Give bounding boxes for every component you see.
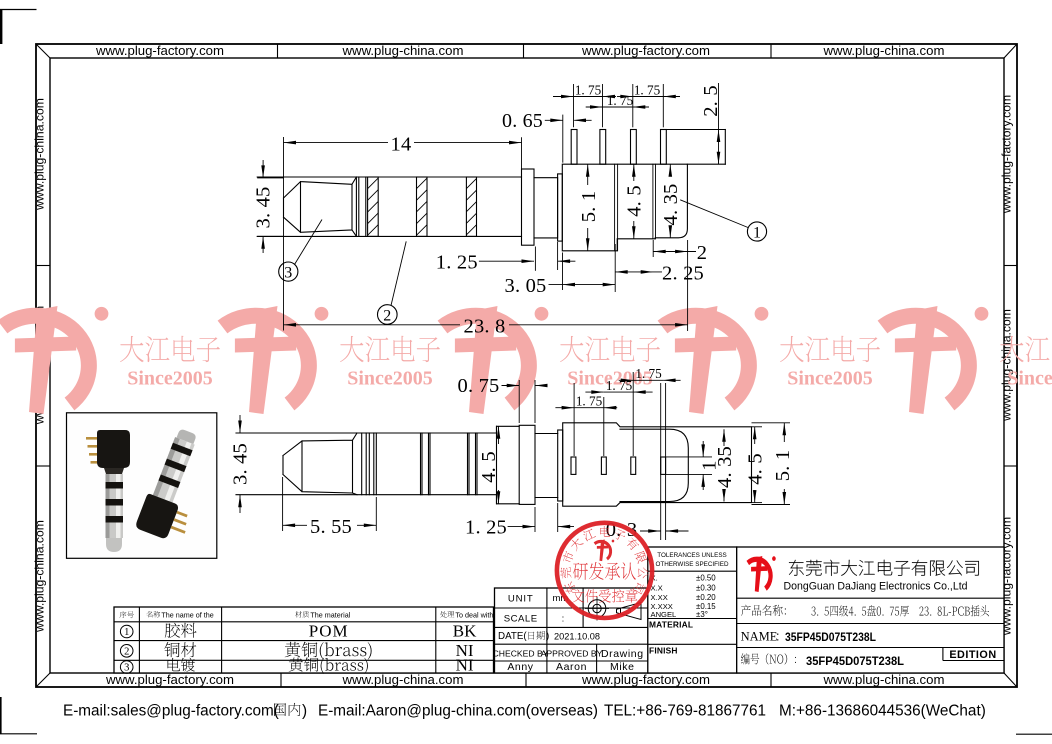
svg-text:3: 3 — [124, 663, 129, 674]
svg-text:www.plug-factory.com: www.plug-factory.com — [581, 43, 710, 58]
svg-text:14: 14 — [391, 134, 412, 156]
svg-text:www.plug-china.com: www.plug-china.com — [33, 520, 47, 633]
svg-text:23. 8: 23. 8 — [464, 316, 506, 338]
svg-text:X.XX: X.XX — [651, 593, 668, 602]
svg-text:1. 75: 1. 75 — [634, 83, 661, 98]
svg-text:4. 5: 4. 5 — [623, 185, 645, 217]
svg-text:www.plug-china.com: www.plug-china.com — [342, 672, 464, 687]
svg-text:X.X: X.X — [651, 584, 663, 593]
svg-text:±0.50: ±0.50 — [696, 574, 716, 583]
svg-text:1. 75: 1. 75 — [635, 366, 662, 381]
svg-text:The material: The material — [310, 611, 350, 620]
svg-text:www.plug-factory.com: www.plug-factory.com — [1000, 95, 1014, 214]
svg-text:2: 2 — [124, 646, 129, 657]
svg-text:1: 1 — [753, 225, 761, 242]
svg-text:ANGEL: ANGEL — [651, 610, 677, 619]
svg-text:±0.30: ±0.30 — [696, 584, 716, 593]
svg-text:3: 3 — [284, 265, 292, 282]
svg-text:1. 75: 1. 75 — [607, 93, 634, 108]
svg-text:www.plug-china.com: www.plug-china.com — [823, 43, 945, 58]
svg-text:0. 65: 0. 65 — [502, 110, 543, 132]
svg-text:UNIT: UNIT — [508, 594, 534, 605]
svg-text:NAME: NAME — [741, 630, 778, 644]
svg-text:2. 5: 2. 5 — [700, 85, 722, 117]
svg-text:3. 45: 3. 45 — [229, 443, 251, 485]
svg-text:2. 25: 2. 25 — [662, 263, 704, 285]
svg-text:TOLERANCES UNLESS: TOLERANCES UNLESS — [657, 552, 727, 559]
svg-text:3. 05: 3. 05 — [505, 275, 547, 297]
svg-text:BK: BK — [453, 622, 477, 641]
svg-text:2: 2 — [697, 242, 707, 264]
svg-text:1. 25: 1. 25 — [465, 517, 507, 539]
svg-text:APPROVED BY: APPROVED BY — [541, 648, 603, 658]
svg-text:www.plug-china.com: www.plug-china.com — [823, 672, 945, 687]
svg-text:1. 75: 1. 75 — [576, 394, 603, 409]
svg-text:Since2005: Since2005 — [127, 368, 213, 390]
svg-text:DongGuan DaJiang Electronics C: DongGuan DaJiang Electronics Co.,Ltd — [784, 581, 968, 593]
svg-text:2021.10.08: 2021.10.08 — [554, 631, 600, 641]
svg-text:4. 35: 4. 35 — [714, 446, 736, 488]
svg-text:5. 1: 5. 1 — [772, 450, 794, 482]
svg-text:Since2005: Since2005 — [347, 368, 433, 390]
svg-text:www.plug-factory.com: www.plug-factory.com — [95, 43, 224, 58]
svg-text:www.plug-china.com: www.plug-china.com — [33, 98, 47, 211]
svg-text:): ) — [546, 631, 549, 642]
svg-text:Since2005: Since2005 — [1007, 368, 1052, 390]
svg-text:4. 5: 4. 5 — [478, 451, 500, 483]
svg-text:5. 1: 5. 1 — [578, 191, 600, 223]
svg-text:M:+86-13686044536(WeChat): M:+86-13686044536(WeChat) — [779, 703, 986, 720]
svg-text:NI: NI — [456, 656, 474, 675]
svg-text:Anny: Anny — [507, 661, 533, 673]
svg-text:Drawing: Drawing — [601, 648, 644, 660]
svg-text:1. 25: 1. 25 — [436, 252, 478, 274]
svg-text:MATERIAL: MATERIAL — [649, 619, 693, 629]
svg-text:3. 45: 3. 45 — [252, 187, 274, 229]
svg-text:DATE(: DATE( — [498, 631, 527, 642]
svg-text:4. 35: 4. 35 — [660, 184, 682, 226]
svg-text:TEL:+86-769-81867761: TEL:+86-769-81867761 — [604, 703, 766, 720]
svg-text:2: 2 — [383, 308, 391, 325]
svg-text:1. 75: 1. 75 — [575, 83, 602, 98]
svg-text:OTHERWISE SPECIFIED: OTHERWISE SPECIFIED — [655, 561, 728, 568]
svg-text:Aaron: Aaron — [556, 661, 587, 673]
svg-text:www.plug-factory.com: www.plug-factory.com — [105, 672, 234, 687]
svg-text:0. 75: 0. 75 — [458, 375, 500, 397]
svg-text:E-mail:Aaron@plug-china.com(ov: E-mail:Aaron@plug-china.com(overseas) — [318, 703, 598, 720]
svg-text:35FP45D075T238L: 35FP45D075T238L — [785, 630, 876, 644]
svg-text:SCALE: SCALE — [504, 614, 538, 625]
svg-text:To deal with: To deal with — [455, 611, 493, 620]
svg-text:POM: POM — [309, 622, 349, 641]
svg-text:): ) — [302, 703, 307, 720]
svg-text:www.plug-china.com: www.plug-china.com — [342, 43, 464, 58]
svg-text:www.plug-factory.com: www.plug-factory.com — [581, 672, 710, 687]
svg-text:FINISH: FINISH — [649, 645, 678, 655]
svg-text::: : — [776, 630, 779, 644]
svg-text:1: 1 — [124, 627, 129, 638]
svg-text:EDITION: EDITION — [949, 649, 996, 661]
svg-text:Mike: Mike — [610, 661, 635, 673]
svg-text:Since2005: Since2005 — [787, 368, 873, 390]
svg-text:35FP45D075T238L: 35FP45D075T238L — [806, 654, 904, 668]
svg-text:±0.20: ±0.20 — [696, 593, 716, 602]
svg-text:www.plug-china.com: www.plug-china.com — [1000, 309, 1014, 422]
svg-text:The name of the: The name of the — [161, 611, 213, 620]
svg-text:5. 55: 5. 55 — [310, 516, 352, 538]
svg-text:±3°: ±3° — [696, 610, 708, 619]
svg-text::: : — [562, 614, 565, 625]
svg-text:4. 5: 4. 5 — [744, 453, 766, 485]
svg-text:E-mail:sales@plug-factory.com(: E-mail:sales@plug-factory.com( — [63, 703, 279, 720]
